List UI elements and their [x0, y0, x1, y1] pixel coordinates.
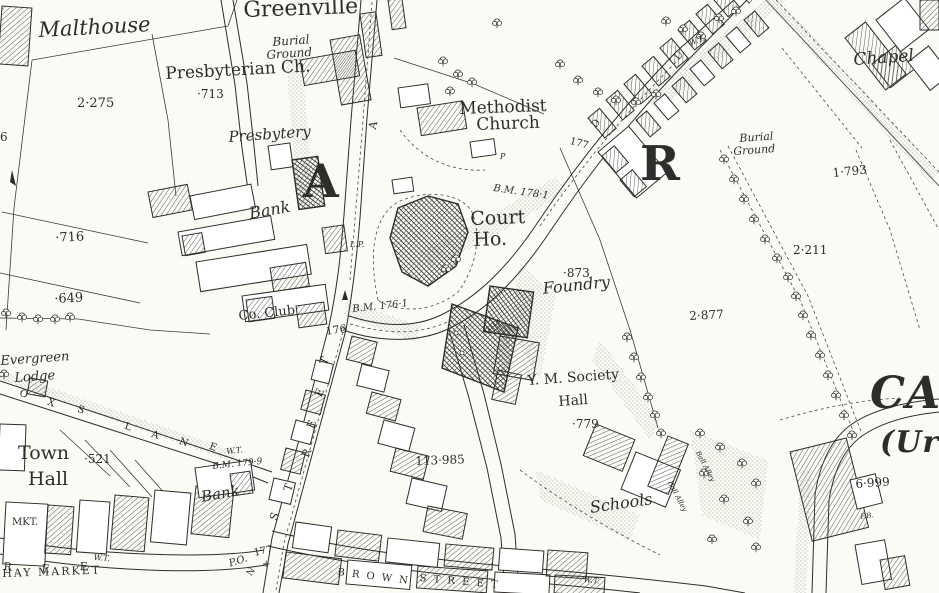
- map-label-schools: Schools: [589, 491, 653, 516]
- map-label-main-street-letter-t1: T: [318, 355, 331, 366]
- map-label-fb-mark: F.B.: [860, 512, 874, 521]
- map-label-lane-letter-n: N: [178, 437, 190, 449]
- map-label-wt-north: W.T.: [688, 35, 706, 48]
- map-label-lane-letter-l: L: [123, 422, 132, 434]
- map-label-greenville: Greenville: [243, 0, 359, 22]
- map-label-methodist-church: Church: [476, 115, 540, 134]
- map-label-street-letter-b: B: [743, 0, 755, 7]
- map-label-bm-178-1: B.M. 178·1: [493, 184, 550, 202]
- map-label-plot-1793: 1·793: [832, 163, 867, 179]
- map-label-lane-letter-o: O: [18, 389, 29, 401]
- map-label-town-hall: Hall: [28, 470, 68, 489]
- map-label-main-street-letter-t2: T: [282, 482, 295, 493]
- map-label-street-letter-u: U: [673, 50, 686, 63]
- map-label-town: Town: [18, 444, 69, 463]
- map-label-spot-649: ·649: [54, 291, 84, 305]
- map-label-lane-letter-a: A: [150, 430, 160, 442]
- map-label-lodge: Lodge: [14, 369, 56, 385]
- map-label-ym-hall: Hall: [558, 393, 588, 409]
- map-labels: GreenvilleMalthouse2·275Presbyterian Ch.…: [0, 0, 939, 593]
- map-label-main-street-letter-e1: E: [313, 387, 326, 399]
- map-label-bank-north: Bank: [248, 199, 291, 222]
- map-label-brown-street-word2: S T R E E T: [419, 574, 500, 591]
- map-label-main-street-letter-r: R: [300, 447, 313, 459]
- map-label-plot-113985: 113·985: [415, 453, 465, 467]
- map-label-spot-521: ·521: [84, 453, 111, 465]
- map-label-spot-779: ·779: [572, 418, 599, 430]
- map-label-district-letters-ca: CA: [870, 372, 939, 416]
- map-label-edge-number-6: 6: [0, 131, 8, 143]
- map-label-p-mark: P: [500, 153, 505, 161]
- map-label-lp-mark: L.P.: [350, 241, 364, 249]
- map-label-street-letter-e3: E: [79, 561, 88, 572]
- map-label-brown-street-word1: B R O W N: [337, 568, 411, 587]
- map-label-malthouse: Malthouse: [38, 14, 151, 41]
- map-label-spot-713: ·713: [197, 88, 224, 100]
- map-label-ball-alley-1: Ball Alley: [694, 450, 716, 483]
- map-label-foundry: Foundry: [542, 274, 611, 297]
- map-label-street-letter-r2: R: [3, 561, 12, 573]
- map-label-post-office: P.O.: [228, 554, 249, 569]
- map-label-wt-southwest: W.T.: [94, 554, 110, 563]
- map-label-court-ho: Ho.: [473, 230, 507, 250]
- map-canvas: GreenvilleMalthouse2·275Presbyterian Ch.…: [0, 0, 939, 593]
- map-label-street-letter-n: N: [246, 567, 258, 579]
- map-label-court: Court: [470, 208, 526, 229]
- map-label-bank-south: Bank: [200, 483, 241, 504]
- map-label-plot-2275: 2·275: [77, 97, 114, 110]
- map-label-boundary-cross: +: [262, 560, 270, 570]
- map-label-plot-2211: 2·211: [793, 244, 827, 256]
- map-label-main-street-letter-e2: E: [305, 419, 318, 431]
- map-label-wt-west: W.T.: [226, 446, 243, 456]
- map-label-plot-6999: 6·999: [855, 476, 890, 490]
- map-label-main-street-letter-s: S: [268, 511, 281, 522]
- map-label-district-letter-a: A: [303, 158, 340, 204]
- map-label-ball-alley-2: Ball Alley: [666, 480, 688, 513]
- map-label-street-letter-e2: E: [41, 563, 50, 575]
- map-label-chapel: Chapel: [853, 48, 915, 69]
- map-label-road-177-south: 177: [253, 545, 274, 559]
- map-label-bm-176-1: B.M. 176·1: [352, 299, 409, 315]
- map-label-evergreen: Evergreen: [0, 350, 70, 368]
- map-label-street-letter-d: D: [590, 118, 603, 131]
- map-label-ym-society: Y. M. Society: [527, 368, 619, 388]
- map-label-x-mark: x: [342, 325, 347, 333]
- map-label-district-letter-r: R: [640, 140, 681, 188]
- map-label-burial-ground-east-line2: Ground: [733, 143, 776, 157]
- map-label-co-club: Co. Club: [238, 304, 296, 323]
- map-label-spot-716: ·716: [55, 230, 85, 244]
- map-label-road-177-east: 177: [568, 137, 589, 152]
- map-label-burial-ground-west-line2: Ground: [266, 46, 312, 61]
- map-label-lane-letter-x: X: [46, 398, 56, 410]
- map-label-lane-letter-s: S: [76, 405, 86, 417]
- map-label-presbytery: Presbytery: [228, 124, 311, 145]
- map-label-district-letters-ur: (Ur: [880, 428, 939, 458]
- map-label-bm-179-9: B.M. 179·9: [212, 458, 263, 472]
- map-label-lane-letter-e: E: [208, 442, 218, 454]
- map-label-mkt: MKT.: [12, 518, 38, 528]
- map-label-plot-2877: 2·877: [689, 308, 724, 322]
- map-label-wt-southeast: W.T.: [583, 576, 600, 586]
- map-label-presbyterian-ch: Presbyterian Ch.: [165, 58, 311, 83]
- map-label-north-street-letter-a: A: [367, 120, 379, 130]
